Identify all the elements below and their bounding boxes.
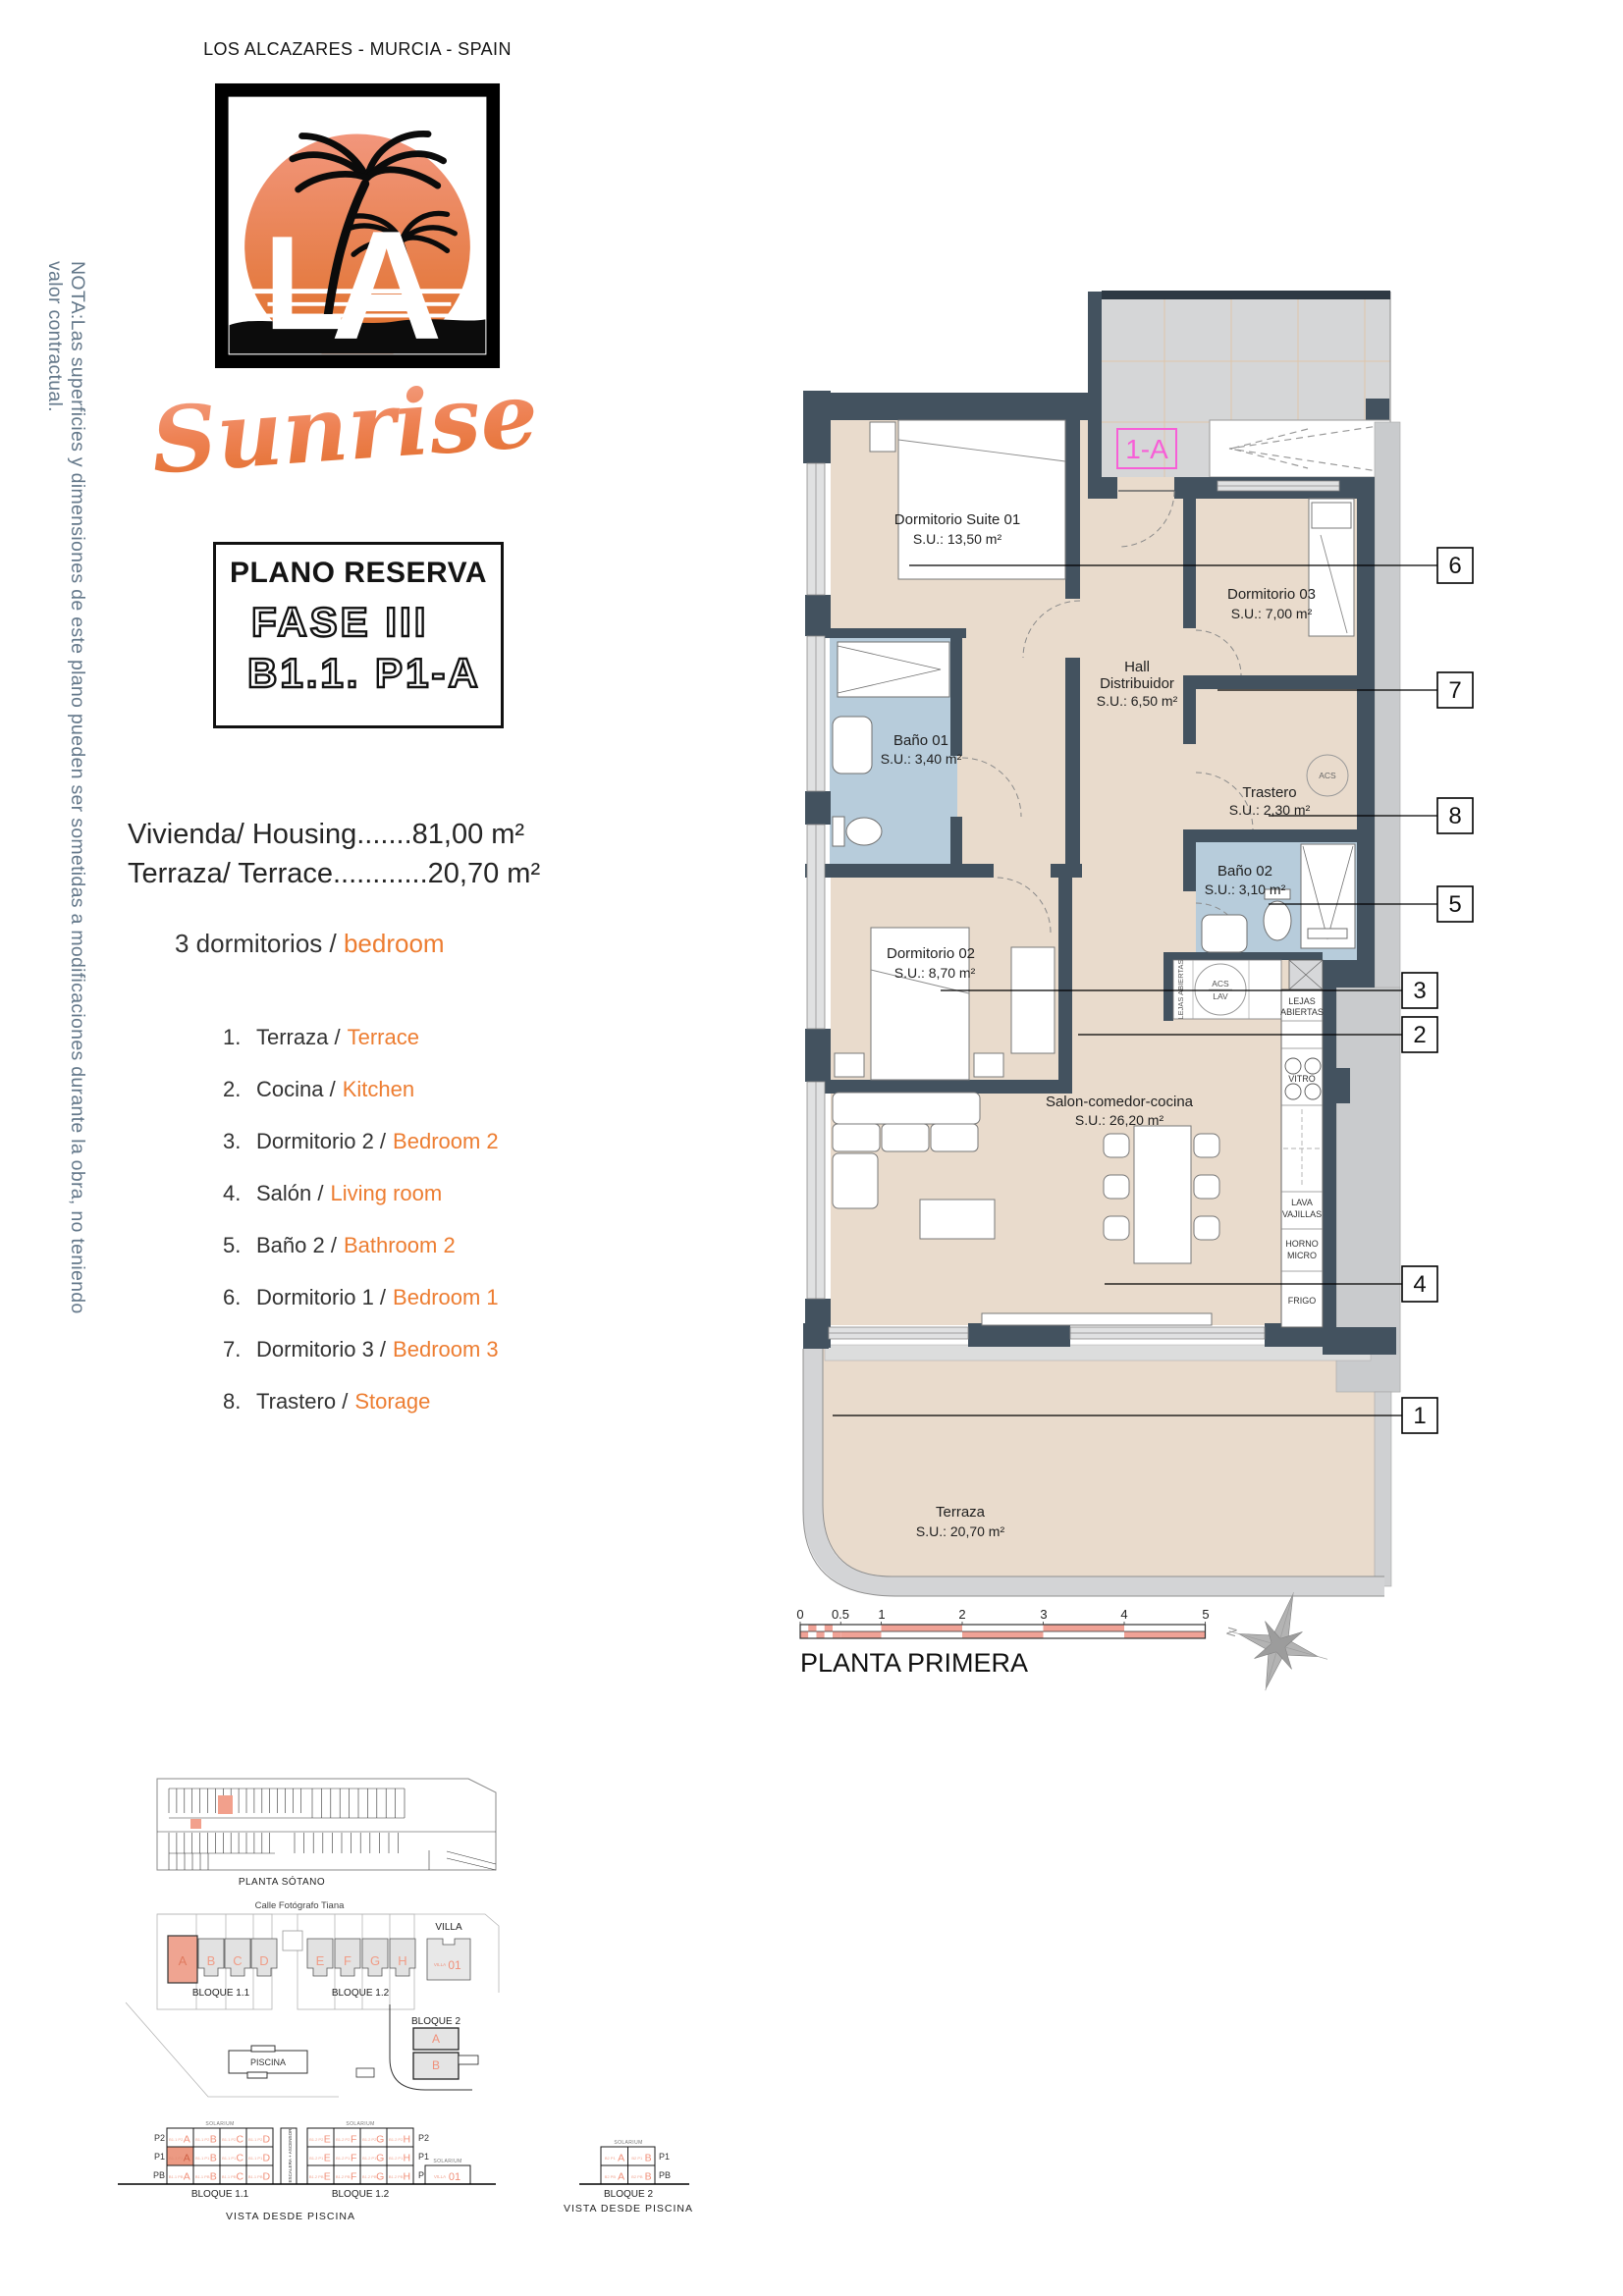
room-area-dorm2: S.U.: 8,70 m² [894, 965, 976, 981]
highlighted-parking-space [218, 1795, 233, 1814]
scale-cell [1124, 1625, 1206, 1631]
scale-tick: 4 [1120, 1607, 1127, 1622]
row-label: P1 [418, 2152, 429, 2162]
elevation-cell-letter: A [184, 2170, 190, 2182]
site-unit-letter: G [370, 1953, 380, 1968]
room-legend: 1.Terraza /Terrace 2.Cocina /Kitchen 3.D… [223, 1027, 499, 1443]
chair [1104, 1134, 1129, 1157]
row-label: P2 [154, 2133, 165, 2143]
solarium-label: SOLARIUM [433, 2159, 461, 2164]
elevation-cell-letter: B [210, 2170, 217, 2182]
legend-es: Terraza / [256, 1027, 341, 1048]
legend-item: 6.Dormitorio 1 /Bedroom 1 [223, 1287, 499, 1308]
legend-es: Dormitorio 1 / [256, 1287, 386, 1308]
oven-label-2: MICRO [1287, 1251, 1317, 1260]
elevation-cell-letter: F [351, 2133, 356, 2145]
site-unit-letter: E [316, 1953, 325, 1968]
scale-cell [840, 1625, 881, 1631]
elev-b2-label: BLOQUE 2 [604, 2189, 653, 2200]
stair-void [1210, 420, 1390, 477]
elevation-cell-prefix: B1.1 P2 [248, 2137, 263, 2142]
elevation-cell-letter: B [210, 2133, 217, 2145]
basement-plan: PLANTA SÓTANO [157, 1779, 496, 1888]
area-summary: Vivienda/ Housing.......81,00 m² Terraza… [128, 815, 540, 893]
scale-cell [825, 1631, 833, 1638]
unit-tag: 1-A [1125, 434, 1168, 464]
vista-caption-left: VISTA DESDE PISCINA [226, 2211, 355, 2222]
elevation-cell-prefix: B1.1 PB [169, 2174, 184, 2179]
elevation-cell-letter: H [403, 2152, 410, 2163]
hob-label: VITRO [1288, 1074, 1316, 1084]
room-area-salon: S.U.: 26,20 m² [1075, 1112, 1164, 1128]
row-label: P2 [418, 2133, 429, 2143]
block11-label: BLOQUE 1.1 [192, 1988, 250, 1999]
room-label-terraza: Terraza [936, 1504, 986, 1521]
elevation-cell-prefix: B1.1 P2 [169, 2137, 184, 2142]
scale-cell [1044, 1631, 1125, 1638]
site-unit-letter: B [207, 1953, 216, 1968]
elevation-cell-prefix: B1.1 P1 [222, 2156, 237, 2161]
room-label-dorm3: Dormitorio 03 [1227, 586, 1316, 603]
callout-number: 5 [1448, 891, 1461, 918]
callout-boxes: 6 7 8 5 3 2 4 1 [1402, 548, 1473, 1433]
villa-label: VILLA [435, 1922, 462, 1933]
sofa-seat [833, 1124, 880, 1151]
location-title: LOS ALCAZARES - MURCIA - SPAIN [192, 39, 522, 60]
elevation-cell-prefix: B1.1 P2 [195, 2137, 210, 2142]
floor-plan: 1-A [687, 187, 1623, 1747]
chair [1194, 1175, 1219, 1199]
site-unit-letter: C [233, 1953, 242, 1968]
elevation-cell-letter: D [262, 2133, 270, 2145]
phase-label: FASE III [251, 598, 501, 647]
legend-num: 7. [223, 1339, 256, 1361]
elevation-cell-letter: D [262, 2152, 270, 2163]
row-label: P1 [154, 2152, 165, 2162]
dishwasher-label-1: LAVA [1291, 1198, 1313, 1207]
villa-cell-pre: VILLA [434, 2174, 446, 2179]
room-label-salon: Salon-comedor-cocina [1046, 1094, 1194, 1110]
pool: PISCINA [229, 2046, 307, 2078]
legend-item: 2.Cocina /Kitchen [223, 1079, 499, 1100]
elevation-cell-prefix: B1.1 P1 [195, 2156, 210, 2161]
sink1 [833, 717, 872, 774]
row-label: PB [659, 2170, 671, 2180]
site-unit-letter: H [398, 1953, 406, 1968]
block2-letter-b: B [432, 2058, 440, 2072]
elevation-cell-letter: G [376, 2170, 384, 2182]
legend-en: Bedroom 2 [393, 1131, 499, 1152]
legend-num: 5. [223, 1235, 256, 1256]
scale-cell [882, 1625, 963, 1631]
villa-cell-num: 01 [449, 2171, 460, 2183]
legend-en: Terrace [348, 1027, 419, 1048]
lav-label: LAV [1213, 991, 1228, 1001]
site-unit-letter-a: A [179, 1953, 188, 1968]
elevation-cell-prefix: B2 P1 [631, 2156, 643, 2161]
dorm3-pillow [1312, 503, 1351, 528]
elevation-cell-letter: E [324, 2170, 331, 2182]
stair-landing: 1-A [1102, 291, 1390, 477]
elevation-cell-letter: A [618, 2152, 624, 2163]
elevation-cell-letter: A [184, 2133, 190, 2145]
callout-number: 4 [1413, 1271, 1426, 1298]
scale-cell [1044, 1625, 1125, 1631]
legend-num: 4. [223, 1183, 256, 1204]
sink2 [1202, 915, 1247, 952]
elevation-cell-letter: E [324, 2133, 331, 2145]
scale-tick-labels: 0 0.5 1 2 3 4 5 [796, 1607, 1209, 1622]
room-label-trastero: Trastero [1242, 784, 1296, 801]
landing-pillar [1366, 399, 1389, 422]
elevation-cell-prefix: B1.1 P1 [248, 2156, 263, 2161]
elevation-cell-letter: C [236, 2170, 243, 2182]
scale-tick: 3 [1040, 1607, 1047, 1622]
legend-num: 1. [223, 1027, 256, 1048]
elevation-cell-prefix: B1.2 P2 [336, 2137, 351, 2142]
elevation-cell-prefix: B1.2 P2 [362, 2137, 377, 2142]
room-label-hall-2: Distribuidor [1100, 675, 1174, 692]
scale-tick: 2 [958, 1607, 965, 1622]
sofa-seat [882, 1124, 929, 1151]
reserve-plan-box: PLANO RESERVA FASE III B1.1. P1-A [213, 542, 504, 728]
balcony-slab [825, 1345, 1371, 1361]
elevation-cell-prefix: B1.1 PB [248, 2174, 263, 2179]
vertical-disclaimer-note: NOTA:Las superficies y dimensiones de es… [43, 261, 88, 1321]
room-area-hall: S.U.: 6,50 m² [1097, 693, 1178, 709]
elevation-cell-prefix: B2 PB [631, 2174, 643, 2179]
elevation-cell-letter: B [645, 2152, 652, 2163]
terrace-right-edge [1375, 1392, 1391, 1586]
nightstand [974, 1053, 1003, 1077]
chair [1104, 1175, 1129, 1199]
la-sunrise-logo: L A [214, 80, 501, 371]
legend-es: Baño 2 / [256, 1235, 337, 1256]
legend-num: 2. [223, 1079, 256, 1100]
elevation-cell-letter: H [403, 2170, 410, 2182]
legend-item: 3.Dormitorio 2 /Bedroom 2 [223, 1131, 499, 1152]
scale-cell [800, 1631, 808, 1638]
room-label-hall-1: Hall [1124, 659, 1150, 675]
wall-right [1357, 477, 1375, 968]
elevation-cell-prefix: B1.2 PB [336, 2174, 351, 2179]
site-plan: Calle Fotógrafo Tiana BCDEFGH A BLOQUE 1… [126, 1900, 499, 2097]
elevation-cell-letter: A [618, 2170, 624, 2182]
scale-cell [833, 1625, 840, 1631]
legend-en: Kitchen [343, 1079, 414, 1100]
elevation-views: B1.1 P2AB1.1 P2BB1.1 P2CB1.1 P2DB1.1 P1A… [118, 2121, 693, 2222]
sofa-chaise [833, 1153, 878, 1208]
elevation-cell-prefix: B1.2 P2 [309, 2137, 324, 2142]
bedrooms-es: 3 dormitorios / [175, 929, 344, 958]
wall-corner-pillar [803, 391, 831, 463]
legend-num: 3. [223, 1131, 256, 1152]
street-label: Calle Fotógrafo Tiana [255, 1900, 346, 1911]
callout-number: 1 [1413, 1403, 1426, 1429]
scale-bar [800, 1622, 1206, 1638]
chair [1194, 1134, 1219, 1157]
legend-en: Bedroom 3 [393, 1339, 499, 1361]
block2-label: BLOQUE 2 [411, 2016, 460, 2027]
scale-cell [817, 1625, 825, 1631]
solarium-label: SOLARIUM [346, 2121, 374, 2127]
terrace-area-line: Terraza/ Terrace............20,70 m² [128, 854, 540, 893]
shower1 [838, 642, 949, 697]
elev-b11-label: BLOQUE 1.1 [191, 2189, 249, 2200]
elevation-cell-letter: B [210, 2152, 217, 2163]
nightstand [835, 1053, 864, 1077]
shower2-tray [1308, 929, 1347, 938]
scale-cell [800, 1625, 808, 1631]
row-label: P1 [659, 2152, 670, 2162]
elevation-cell-letter: H [403, 2133, 410, 2145]
legend-item: 7.Dormitorio 3 /Bedroom 3 [223, 1339, 499, 1361]
landing-top-wall [1102, 291, 1390, 299]
elevation-cell-prefix: B1.2 PB [309, 2174, 324, 2179]
elevation-cell-prefix: B1.2 P2 [389, 2137, 404, 2142]
elevation-cell-prefix: B2 PB [605, 2174, 617, 2179]
scale-cell [882, 1631, 963, 1638]
nightstand [870, 422, 895, 452]
site-plans: PLANTA SÓTANO Calle Fotógrafo Tiana BCDE… [88, 1757, 697, 2258]
elevation-cell-letter: C [236, 2152, 243, 2163]
open-shelves-label-1: LEJAS [1288, 996, 1316, 1006]
elevation-cell-prefix: B1.1 PB [195, 2174, 210, 2179]
toilet1-tank [833, 817, 844, 846]
pool-label: PISCINA [250, 2057, 286, 2067]
toilet1 [846, 818, 882, 845]
elevation-cell-prefix: B1.2 P1 [309, 2156, 324, 2161]
scale-cell [1124, 1631, 1206, 1638]
scale-cell [808, 1631, 816, 1638]
coffee-table [920, 1200, 995, 1239]
page: { "header": { "location": "LOS ALCAZARES… [0, 0, 1623, 2296]
legend-num: 8. [223, 1391, 256, 1413]
unit-label: B1.1. P1-A [247, 649, 501, 698]
elevation-cell-prefix: B1.1 P2 [222, 2137, 237, 2142]
elevation-cell-letter: C [236, 2133, 243, 2145]
compass-north-label: N [1223, 1626, 1240, 1638]
callout-number: 3 [1413, 978, 1426, 1004]
wardrobe [1011, 947, 1055, 1053]
elevation-cell-letter: F [351, 2170, 356, 2182]
elevation-cell-prefix: B1.2 P1 [362, 2156, 377, 2161]
highlighted-storage-unit [190, 1819, 201, 1829]
elevation-cell-prefix: B1.2 PB [389, 2174, 404, 2179]
chair [1104, 1216, 1129, 1240]
reserve-title: PLANO RESERVA [216, 557, 501, 590]
legend-en: Living room [331, 1183, 443, 1204]
legend-es: Salón / [256, 1183, 324, 1204]
vista-caption-right: VISTA DESDE PISCINA [564, 2203, 693, 2215]
scale-tick: 0.5 [832, 1607, 849, 1622]
scale-tick: 0 [796, 1607, 803, 1622]
wall-landing-left [1088, 292, 1102, 478]
logo-letter-a: A [331, 199, 443, 371]
floor-title: PLANTA PRIMERA [800, 1648, 1028, 1678]
open-shelves-label-2: ABIERTAS [1280, 1007, 1324, 1017]
elevation-cell-letter: B [645, 2170, 652, 2182]
scale-cell [962, 1625, 1044, 1631]
room-label-bano2: Baño 02 [1217, 863, 1272, 880]
legend-item: 4.Salón /Living room [223, 1183, 499, 1204]
elevation-cell-prefix: B2 P1 [605, 2156, 617, 2161]
elevation-cell-letter: E [324, 2152, 331, 2163]
room-label-dorm2: Dormitorio 02 [887, 945, 975, 962]
legend-en: Bathroom 2 [344, 1235, 456, 1256]
legend-en: Storage [354, 1391, 430, 1413]
sofa-seat [931, 1124, 978, 1151]
room-label-suite: Dormitorio Suite 01 [894, 511, 1020, 528]
legend-en: Bedroom 1 [393, 1287, 499, 1308]
scale-cell [833, 1631, 840, 1638]
solarium-label: SOLARIUM [205, 2121, 234, 2127]
callout-number: 8 [1448, 803, 1461, 829]
suite-bed [898, 420, 1065, 579]
toilet2 [1264, 901, 1291, 940]
oven-label-1: HORNO [1285, 1239, 1319, 1249]
row-label: PB [153, 2170, 165, 2180]
chair [1194, 1216, 1219, 1240]
solarium-label: SOLARIUM [614, 2140, 642, 2146]
housing-area-line: Vivienda/ Housing.......81,00 m² [128, 815, 540, 854]
elevation-cell-prefix: B1.1 PB [222, 2174, 237, 2179]
room-area-bano1: S.U.: 3,40 m² [881, 751, 962, 767]
block12-label: BLOQUE 1.2 [332, 1988, 390, 1999]
villa-num: 01 [448, 1958, 461, 1972]
elevation-cell-letter: A [184, 2152, 190, 2163]
sofa-back [833, 1093, 980, 1124]
scale-cell [840, 1631, 881, 1638]
open-shelves-vertical-label: LEJAS ABIERTAS [1176, 960, 1185, 1020]
elevation-cell-prefix: B1.2 PB [362, 2174, 377, 2179]
legend-num: 6. [223, 1287, 256, 1308]
elevation-cell-letter: G [376, 2133, 384, 2145]
elevation-cell-prefix: B1.1 P1 [169, 2156, 184, 2161]
legend-item: 5.Baño 2 /Bathroom 2 [223, 1235, 499, 1256]
legend-es: Dormitorio 3 / [256, 1339, 386, 1361]
elev-b12-label: BLOQUE 1.2 [332, 2189, 390, 2200]
block2-letter-a: A [432, 2032, 440, 2046]
brand-script-title: Sunrise [123, 360, 567, 497]
scale-cell [962, 1631, 1044, 1638]
room-area-bano2: S.U.: 3,10 m² [1205, 881, 1286, 897]
wall-kitchen-right [1323, 988, 1336, 1327]
acs-label: ACS [1212, 979, 1229, 988]
legend-es: Trastero / [256, 1391, 348, 1413]
bedrooms-en: bedroom [344, 929, 445, 958]
site-unit-letter: D [259, 1953, 268, 1968]
scale-tick: 5 [1202, 1607, 1209, 1622]
scale-cell [817, 1631, 825, 1638]
basement-label: PLANTA SÓTANO [239, 1875, 325, 1888]
room-area-suite: S.U.: 13,50 m² [913, 531, 1002, 547]
room-area-dorm3: S.U.: 7,00 m² [1231, 606, 1313, 621]
elevation-cell-letter: F [351, 2152, 356, 2163]
scale-tick: 1 [878, 1607, 885, 1622]
legend-item: 8.Trastero /Storage [223, 1391, 499, 1413]
elevation-cell-letter: G [376, 2152, 384, 2163]
elevation-cell-prefix: B1.2 P1 [389, 2156, 404, 2161]
room-label-bano1: Baño 01 [893, 732, 948, 749]
stair-core-label: ESCALERA + ASCENSOR [288, 2128, 293, 2183]
legend-es: Cocina / [256, 1079, 336, 1100]
elevation-cell-letter: D [262, 2170, 270, 2182]
wall-top [805, 393, 1102, 420]
dishwasher-label-2: VAJILLAS [1282, 1209, 1322, 1219]
callout-number: 7 [1448, 677, 1461, 704]
legend-es: Dormitorio 2 / [256, 1131, 386, 1152]
scale-cell [808, 1625, 816, 1631]
elevation-cell-prefix: B1.2 P1 [336, 2156, 351, 2161]
tv-bench [982, 1313, 1212, 1325]
elevation-block-labels: BLOQUE 1.1 BLOQUE 1.2 BLOQUE 2 [191, 2189, 654, 2200]
room-area-terraza: S.U.: 20,70 m² [916, 1523, 1005, 1539]
acs-tank-label: ACS [1319, 771, 1336, 780]
callout-number: 2 [1413, 1022, 1426, 1048]
legend-item: 1.Terraza /Terrace [223, 1027, 499, 1048]
fridge-label: FRIGO [1288, 1296, 1317, 1306]
dining-table [1134, 1126, 1191, 1263]
site-unit-letter: F [344, 1953, 352, 1968]
bedrooms-line: 3 dormitorios / bedroom [175, 929, 445, 959]
terrace-floor [823, 1349, 1375, 1576]
scale-cell [825, 1625, 833, 1631]
villa-pre: VILLA [434, 1962, 446, 1967]
callout-number: 6 [1448, 553, 1461, 579]
